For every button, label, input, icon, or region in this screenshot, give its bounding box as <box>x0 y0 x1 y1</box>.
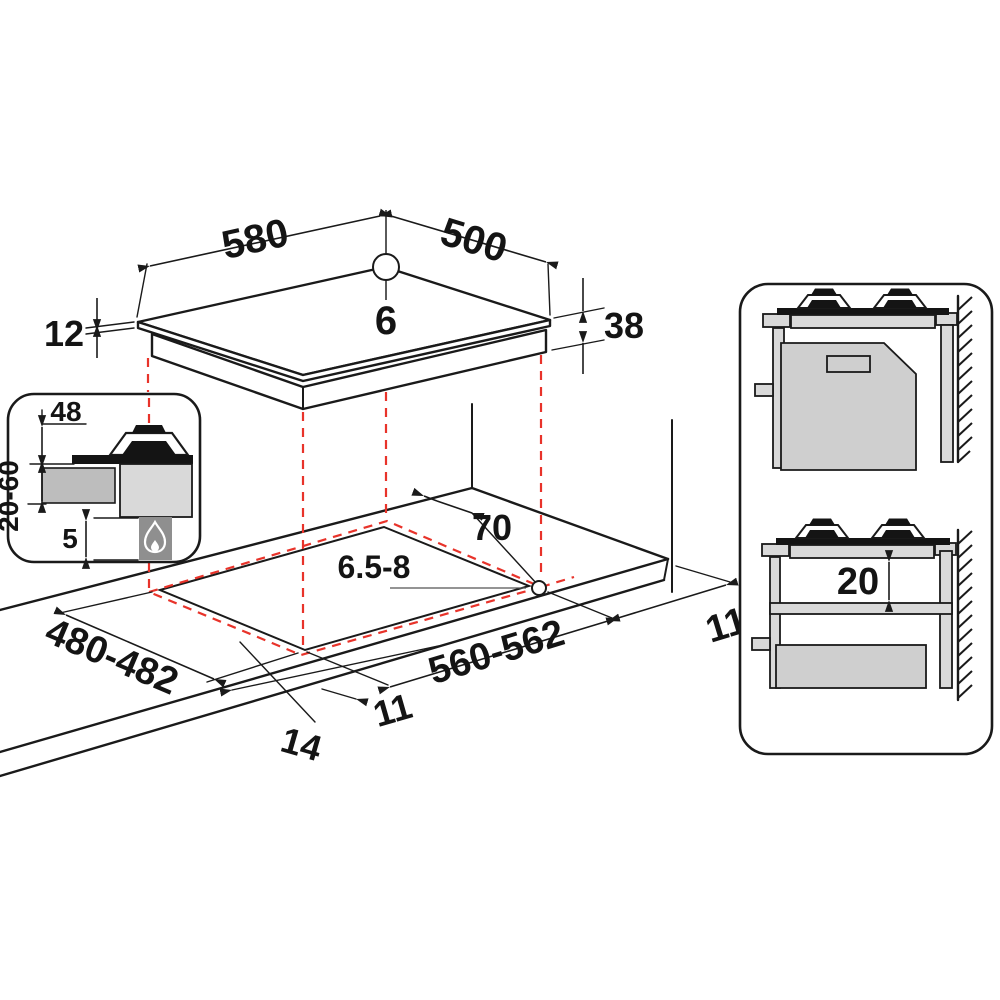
fixing-clamp-left <box>763 314 790 327</box>
cabinet-rail-left <box>755 384 773 396</box>
dim-rear-clearance: 70 <box>424 496 537 584</box>
drawer <box>776 645 926 688</box>
installation-diagram: 70 6.5-8 480-482 14 11 560-562 <box>0 0 1000 1000</box>
installation-side-views: 20 <box>740 284 992 754</box>
dim-48-label: 48 <box>50 396 81 427</box>
dim-70-label: 70 <box>472 507 512 548</box>
worktop-section <box>42 468 115 503</box>
hob-body-view1 <box>791 315 935 328</box>
worktop-front-band <box>0 580 664 776</box>
dim-cutout-width: 560-562 <box>307 592 612 693</box>
separator-shelf <box>770 603 952 614</box>
dim-14-label: 14 <box>277 719 327 769</box>
dim-6-label: 6 <box>375 299 397 343</box>
fixing-hole <box>532 581 546 595</box>
hob-underside <box>120 464 192 517</box>
dim-5-label: 5 <box>62 523 78 554</box>
dim-500-label: 500 <box>435 210 512 272</box>
dim-12-label: 12 <box>44 313 84 354</box>
hob-surface-bar <box>72 455 193 464</box>
dim-20-label: 20 <box>837 561 879 603</box>
hob-glass-top-view2 <box>776 538 950 545</box>
dim-480-482-label: 480-482 <box>39 610 184 703</box>
oven-vent <box>827 356 870 372</box>
burner-cap <box>132 425 166 433</box>
hob-glass-top-view1 <box>777 308 949 315</box>
dim-38-label: 38 <box>604 305 644 346</box>
gas-hole <box>373 254 399 280</box>
cabinet-side-right <box>941 325 953 462</box>
dim-11-label: 11 <box>369 685 417 735</box>
cabinet-side-right2 <box>940 551 952 688</box>
worktop-band-end <box>664 559 668 580</box>
dim-580-label: 580 <box>218 211 293 268</box>
fixing-clamp-left2 <box>762 544 789 556</box>
dim-6.5-8-label: 6.5-8 <box>338 549 411 585</box>
dim-total-height-38: 38 <box>552 278 644 374</box>
dim-cutout-depth: 480-482 <box>39 592 298 704</box>
dim-glass-thickness-12: 12 <box>44 298 134 358</box>
dim-20-60-label: 20-60 <box>0 460 24 532</box>
burner-detail-inset: 48 20-60 5 <box>0 394 200 562</box>
hob-body-view2 <box>790 545 934 558</box>
hob-top-view: 6 580 500 12 38 <box>44 210 644 409</box>
dim-offsets: 14 11 <box>232 642 438 769</box>
cabinet-rail-left2 <box>752 638 770 650</box>
